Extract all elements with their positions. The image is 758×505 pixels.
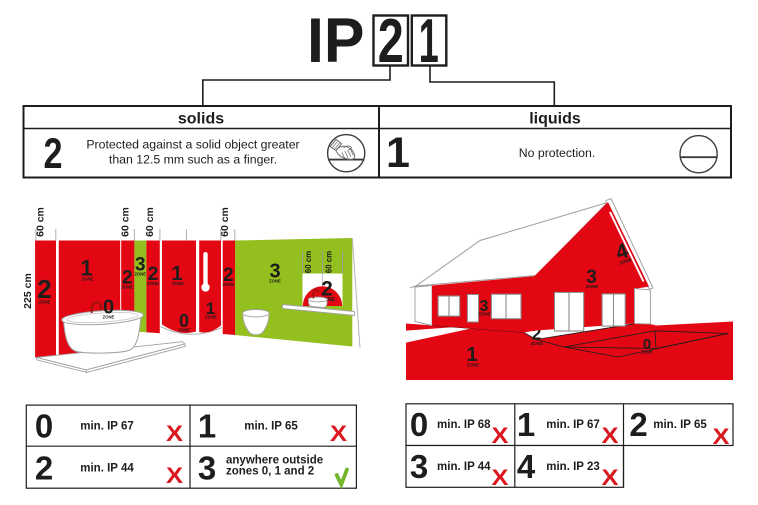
svg-text:X: X xyxy=(166,421,183,446)
svg-text:ZONE: ZONE xyxy=(531,341,544,346)
svg-text:ZONE: ZONE xyxy=(479,312,491,317)
svg-text:min. IP 67: min. IP 67 xyxy=(546,419,599,431)
svg-text:min. IP 44: min. IP 44 xyxy=(80,463,134,475)
svg-text:ZONE: ZONE xyxy=(39,300,51,305)
svg-text:X: X xyxy=(492,423,509,448)
svg-text:min. IP 23: min. IP 23 xyxy=(546,461,599,473)
svg-text:1: 1 xyxy=(198,408,216,445)
svg-text:0: 0 xyxy=(410,406,428,443)
svg-text:225 cm: 225 cm xyxy=(22,273,34,309)
svg-text:ZONE: ZONE xyxy=(121,285,133,290)
svg-text:ZONE: ZONE xyxy=(134,272,146,277)
svg-text:ZONE: ZONE xyxy=(147,281,159,286)
svg-text:ZONE: ZONE xyxy=(103,315,115,320)
svg-text:1: 1 xyxy=(386,129,410,177)
svg-text:min. IP 65: min. IP 65 xyxy=(653,419,707,431)
svg-text:0: 0 xyxy=(35,408,53,445)
svg-text:min. IP 68: min. IP 68 xyxy=(437,419,491,431)
svg-text:4: 4 xyxy=(517,448,536,485)
svg-text:2: 2 xyxy=(629,406,647,443)
svg-text:60 cm: 60 cm xyxy=(144,207,156,237)
svg-text:min. IP 44: min. IP 44 xyxy=(437,461,491,473)
svg-text:3: 3 xyxy=(410,448,428,485)
svg-text:ZONE: ZONE xyxy=(82,277,94,282)
svg-text:IP: IP xyxy=(307,6,365,76)
svg-text:60 cm: 60 cm xyxy=(304,251,313,273)
svg-text:X: X xyxy=(166,463,183,488)
svg-text:ZONE: ZONE xyxy=(586,284,599,289)
svg-text:X: X xyxy=(602,423,619,448)
svg-text:1: 1 xyxy=(419,7,439,76)
svg-text:X: X xyxy=(713,424,730,449)
svg-text:ZONE: ZONE xyxy=(222,282,234,287)
svg-text:No protection.: No protection. xyxy=(519,146,596,160)
svg-text:ZONE: ZONE xyxy=(205,315,217,320)
svg-text:60 cm: 60 cm xyxy=(119,207,131,237)
svg-text:min. IP 67: min. IP 67 xyxy=(80,421,133,433)
svg-text:solids: solids xyxy=(178,111,224,128)
svg-text:ZONE: ZONE xyxy=(641,350,653,355)
svg-text:ZONE: ZONE xyxy=(269,279,281,284)
svg-text:2: 2 xyxy=(378,7,404,76)
svg-text:2: 2 xyxy=(44,130,63,178)
svg-text:min. IP 65: min. IP 65 xyxy=(244,421,298,433)
svg-text:3: 3 xyxy=(198,450,216,487)
svg-text:X: X xyxy=(330,421,347,446)
svg-text:than 12.5 mm such as a finger.: than 12.5 mm such as a finger. xyxy=(109,153,277,167)
svg-text:X: X xyxy=(492,465,509,490)
svg-text:2: 2 xyxy=(35,450,53,487)
svg-text:ZONE: ZONE xyxy=(172,281,184,286)
svg-text:Protected against a solid obje: Protected against a solid object greater xyxy=(86,138,299,152)
svg-text:zones 0, 1 and 2: zones 0, 1 and 2 xyxy=(226,466,314,478)
svg-text:1: 1 xyxy=(517,406,535,443)
svg-text:X: X xyxy=(602,465,619,490)
svg-text:ZONE: ZONE xyxy=(178,328,190,333)
svg-text:liquids: liquids xyxy=(529,111,581,128)
svg-text:ZONE: ZONE xyxy=(467,363,480,368)
svg-text:60 cm: 60 cm xyxy=(325,251,334,273)
